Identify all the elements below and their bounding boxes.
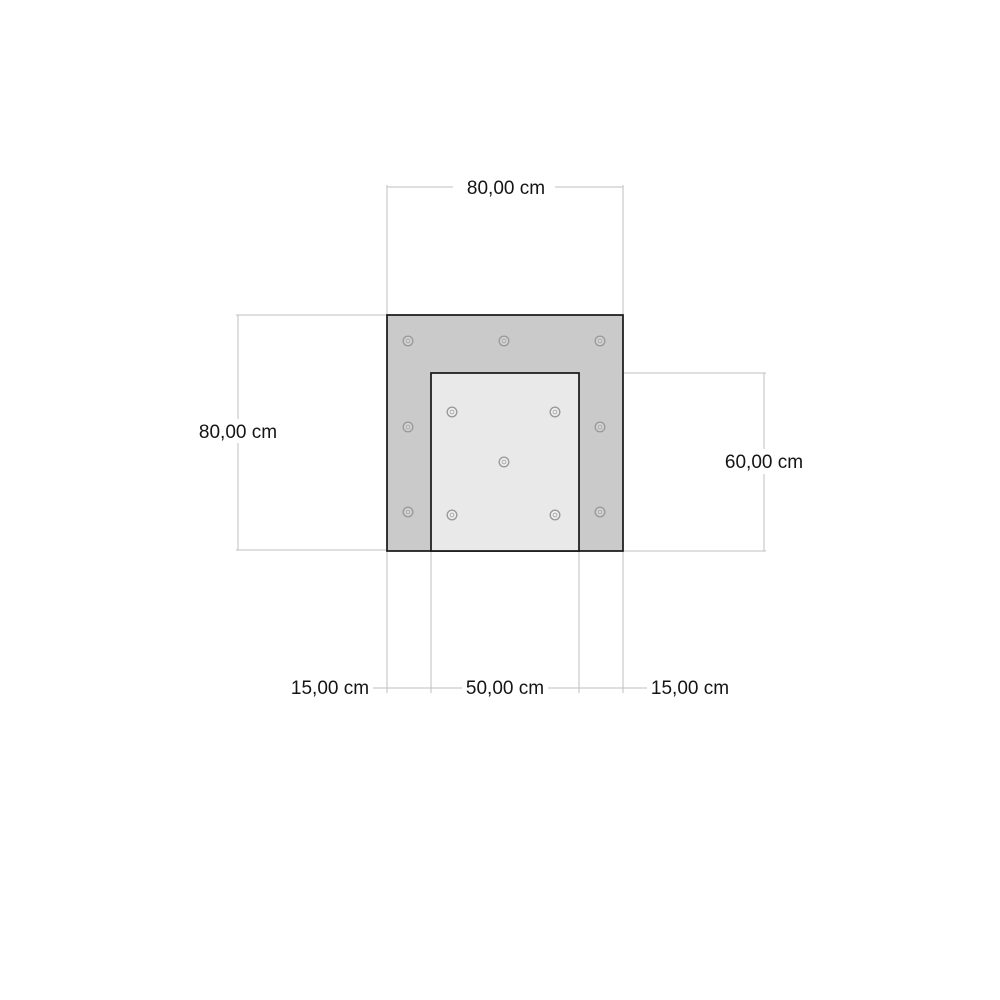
mounting-hole <box>499 336 509 346</box>
technical-drawing: 80,00 cm 80,00 cm 60,00 cm 15,00 cm 50,0… <box>0 0 1000 1000</box>
dim-label-bottom-left-margin: 15,00 cm <box>291 678 369 699</box>
dimension-bottom <box>373 551 647 693</box>
dim-label-right-inner-height: 60,00 cm <box>725 452 803 473</box>
mounting-hole <box>595 422 605 432</box>
dim-label-top-width: 80,00 cm <box>467 178 545 199</box>
drawing-svg: 80,00 cm 80,00 cm 60,00 cm 15,00 cm 50,0… <box>0 0 1000 1000</box>
mounting-hole <box>550 510 560 520</box>
mounting-hole <box>595 507 605 517</box>
mounting-hole <box>499 457 509 467</box>
mounting-hole <box>550 407 560 417</box>
mounting-hole <box>595 336 605 346</box>
dim-label-bottom-right-margin: 15,00 cm <box>651 678 729 699</box>
dim-label-left-height: 80,00 cm <box>199 422 277 443</box>
dim-label-bottom-inner-width: 50,00 cm <box>466 678 544 699</box>
mounting-hole <box>447 407 457 417</box>
mounting-hole <box>403 507 413 517</box>
mounting-hole <box>447 510 457 520</box>
mounting-hole <box>403 422 413 432</box>
dimension-top <box>387 185 623 315</box>
mounting-hole <box>403 336 413 346</box>
